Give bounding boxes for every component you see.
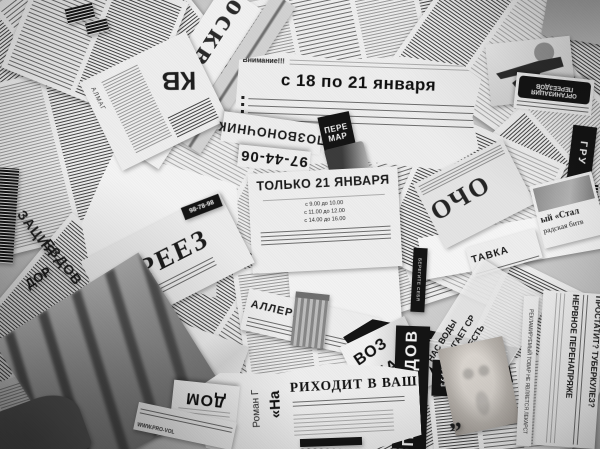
print-lines [293,407,394,436]
print-lines [293,396,405,407]
vertical-roman: Роман Г [250,389,263,427]
headline-attention: Внимание!!! [243,57,285,65]
letters-na: «На [266,390,284,418]
clipping-prostatit: ПРОСТАТИТ? ТУБЕРКУЛЕЗ? НЕРВНОЕ ПЕРЕНАПРЯ… [533,290,600,449]
chip-gru-text: ГРУ [575,140,589,166]
ad-scrap-only21: ТОЛЬКО 21 ЯНВАРЯ с 9.00 до 10.00 с 11.00… [247,166,402,274]
prostatit-rotated-block: ПРОСТАТИТ? ТУБЕРКУЛЕЗ? НЕРВНОЕ ПЕРЕНАПРЯ… [535,292,600,446]
bullet-square [241,95,244,98]
letters-dom: ДОМ [185,388,227,410]
movers-black-box: ОРГАНИЗАЦИЯ ПЕРЕЕЗДОВ [517,75,591,104]
print-lines [261,225,392,246]
building-photo [290,291,329,348]
headline-date-range: с 18 по 21 января [242,69,476,97]
beregite-text: БЕРЕГИТЕ СЕБЯ [415,258,422,302]
newspaper-collage-photo: осква АЛМАГ КВ Внимание!!! с 18 по 21 ян… [0,0,600,449]
bullet-square [241,109,244,112]
bullet-square [241,102,244,105]
phone-number-1: 97-44-06 [239,147,308,171]
caption-almag: АЛМАГ [89,87,105,112]
headline-only21: ТОЛЬКО 21 ЯНВАРЯ [254,172,393,193]
disclaimer-text: РЕКЛАМИРУЕМЫЙ ТОВАР НЕ ЯВЛЯЕТСЯ ЛЕКАРСТ [521,308,534,433]
letters-kv: КВ [162,65,197,97]
